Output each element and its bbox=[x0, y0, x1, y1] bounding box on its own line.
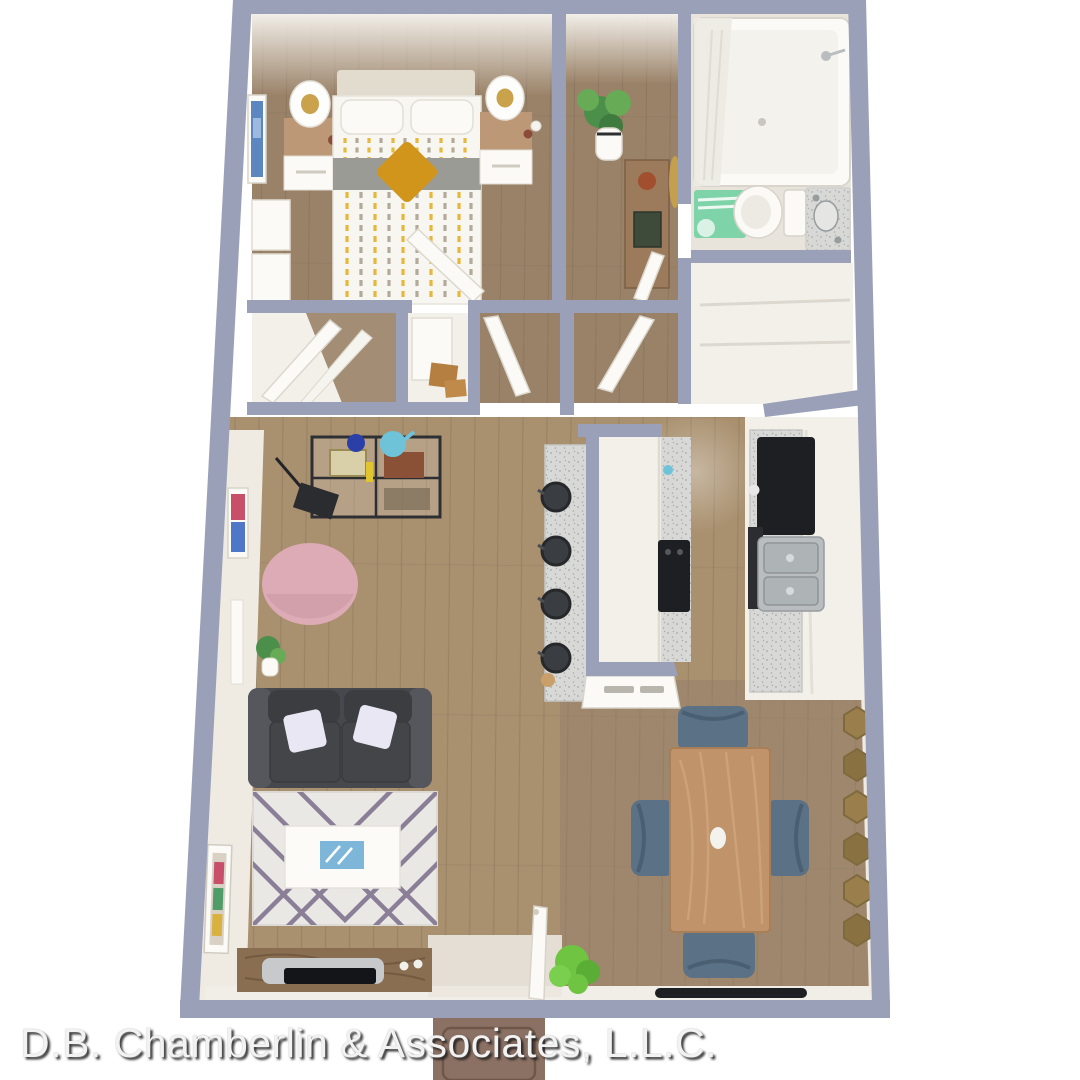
headboard bbox=[337, 70, 475, 98]
sofa-pillow bbox=[282, 708, 327, 753]
decor-book bbox=[634, 212, 661, 247]
vase bbox=[638, 172, 656, 190]
kitchen-sink bbox=[758, 537, 824, 611]
dining-chair bbox=[631, 800, 675, 876]
dining-chair bbox=[683, 928, 755, 978]
plate bbox=[710, 827, 726, 849]
floor-plan-image bbox=[0, 0, 1080, 1080]
wall-top bbox=[233, 0, 866, 14]
tub-drain bbox=[758, 118, 766, 126]
dining-chair bbox=[765, 800, 809, 876]
bedroom-closet-door bbox=[252, 200, 290, 250]
wall-bottom bbox=[180, 1000, 890, 1018]
wall-bathroom-left bbox=[678, 14, 691, 204]
threshold bbox=[655, 988, 807, 998]
sofa bbox=[248, 688, 432, 788]
dining-table bbox=[670, 748, 770, 932]
blue-bowl bbox=[347, 434, 365, 452]
bathroom-sink bbox=[814, 201, 838, 231]
bathroom bbox=[694, 18, 850, 250]
toilet-tank bbox=[784, 190, 806, 236]
gold-frame bbox=[330, 450, 366, 476]
pillow bbox=[341, 100, 403, 134]
refrigerator bbox=[757, 437, 815, 535]
kitchen bbox=[745, 417, 872, 700]
pantry-floor bbox=[691, 263, 853, 404]
dining-chair bbox=[678, 706, 748, 752]
pillow bbox=[411, 100, 473, 134]
stove bbox=[658, 540, 690, 612]
wall-bedroom-right bbox=[552, 14, 566, 313]
faucet bbox=[813, 195, 820, 202]
wall-bathroom-bottom bbox=[691, 250, 851, 263]
wall-closet-bottom bbox=[247, 402, 480, 415]
blue-tray bbox=[320, 841, 364, 869]
island-half-wall bbox=[599, 424, 661, 664]
company-caption: D.B. Chamberlin & Associates, L.L.C. bbox=[20, 1020, 1070, 1067]
floor-plan-page: D.B. Chamberlin & Associates, L.L.C. bbox=[0, 0, 1080, 1080]
media-console bbox=[237, 948, 432, 992]
